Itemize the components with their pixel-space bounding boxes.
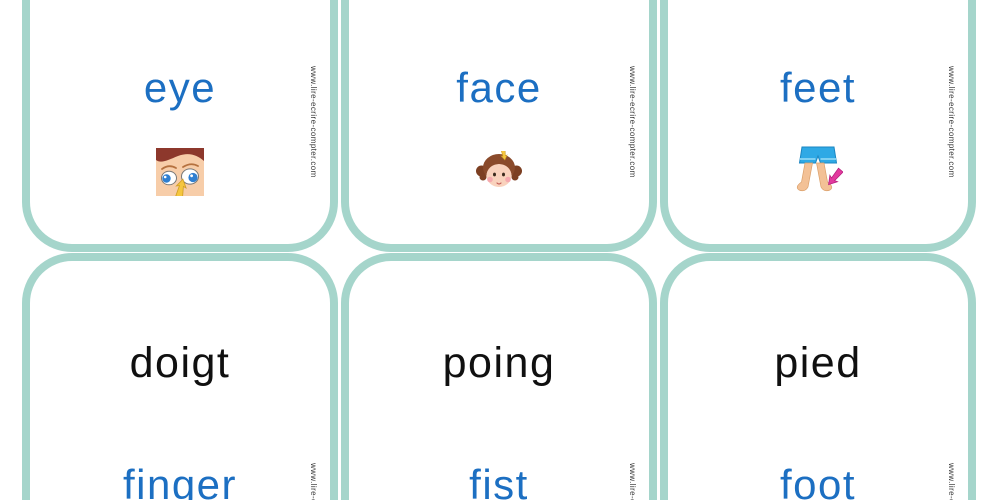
website-watermark: www.lire-ecrire-compter.com: [628, 463, 637, 500]
website-watermark: www.lire-ecrire-compter.com: [309, 463, 318, 500]
website-watermark: www.lire-ecrire-compter.com: [947, 66, 956, 206]
flashcard-face: face www.lire-ecrire-compter.com: [341, 0, 657, 252]
english-word: eye: [30, 60, 330, 116]
french-word: doigt: [30, 335, 330, 391]
flashcard-feet: feet www.lire-ecrire-compter.com: [660, 0, 976, 252]
french-word: pied: [668, 335, 968, 391]
french-word: poing: [349, 335, 649, 391]
face-illustration: [349, 146, 649, 198]
website-watermark: www.lire-ecrire-compter.com: [947, 463, 956, 500]
english-word: face: [349, 60, 649, 116]
english-word: foot: [668, 457, 968, 500]
english-word: fist: [349, 457, 649, 500]
english-word: feet: [668, 60, 968, 116]
flashcard-fist: poing fist www.lire-ecrire-compter.com: [341, 253, 657, 500]
feet-illustration: [668, 146, 968, 198]
flashcard-foot: pied foot www.lire-ecrire-compter.com: [660, 253, 976, 500]
eye-illustration: [30, 146, 330, 198]
website-watermark: www.lire-ecrire-compter.com: [309, 66, 318, 206]
website-watermark: www.lire-ecrire-compter.com: [628, 66, 637, 206]
flashcard-finger: doigt finger www.lire-ecrire-compter.com: [22, 253, 338, 500]
flashcard-sheet: eye www.lire-ecrire-compter.com face: [0, 0, 1000, 500]
flashcard-eye: eye www.lire-ecrire-compter.com: [22, 0, 338, 252]
english-word: finger: [30, 457, 330, 500]
